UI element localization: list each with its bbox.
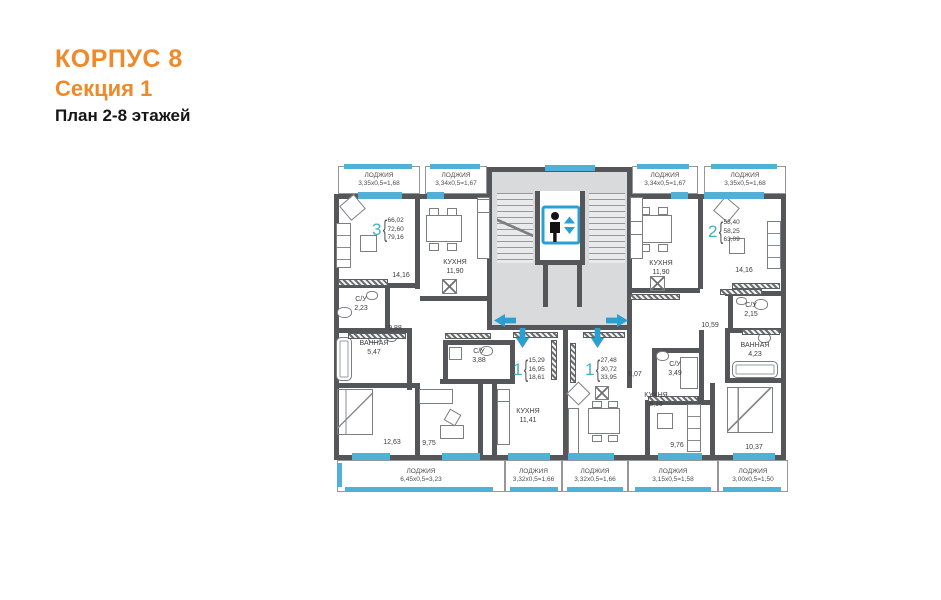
- loggia-top-1: ЛОДЖИЯ 3,35х0,5=1,68: [338, 166, 420, 194]
- window-strip: [345, 487, 493, 492]
- floor-plan: ЛОДЖИЯ 3,35х0,5=1,68 ЛОДЖИЯ 3,34х0,5=1,6…: [330, 163, 790, 495]
- window-strip: [637, 164, 689, 169]
- loggia-top-2: ЛОДЖИЯ 3,34х0,5=1,67: [425, 166, 487, 194]
- wall-segment: [443, 340, 448, 383]
- furniture: [767, 221, 781, 269]
- room-label-mid2-hall: 6,07: [622, 370, 648, 379]
- room-label-bedroom-1263: 12,63: [374, 438, 410, 447]
- loggia-top-4: ЛОДЖИЯ 3,35х0,5=1,68: [704, 166, 786, 194]
- room-label-left-living: 14,16: [384, 271, 418, 280]
- area-total: 15,29: [528, 357, 544, 365]
- entrance-arrow-down-1: [516, 328, 529, 348]
- room-area: 9,75: [412, 439, 446, 448]
- area-living: 30,72: [600, 366, 616, 374]
- room-label-mid-wc: С/У3,88: [462, 347, 496, 365]
- elevator-icon: [541, 205, 581, 245]
- title-block: КОРПУС 8 Секция 1 План 2-8 этажей: [55, 44, 190, 128]
- room-label-room-976: 9,76: [660, 441, 694, 450]
- entrance-arrow-down-2: [591, 328, 604, 348]
- wall-segment: [420, 296, 492, 301]
- window-strip: [352, 453, 390, 460]
- wall-segment: [580, 191, 585, 265]
- wall-segment: [577, 265, 582, 307]
- room-area: 12,63: [374, 438, 410, 447]
- window-strip: [658, 453, 702, 460]
- wall-segment: [407, 328, 412, 390]
- loggia-dims: 3,34х0,5=1,67: [435, 180, 476, 188]
- window-strip: [442, 453, 480, 460]
- furniture: [429, 208, 439, 216]
- furniture: [592, 401, 602, 408]
- furniture: [732, 361, 778, 378]
- area-full: 18,61: [528, 374, 544, 382]
- vent-hatch: [720, 289, 762, 295]
- room-area: 5,47: [350, 348, 398, 357]
- furniture: [426, 215, 462, 242]
- vent-hatch: [583, 332, 625, 338]
- furniture: [477, 199, 490, 213]
- loggia-dims: 3,35х0,5=1,68: [724, 180, 765, 188]
- room-area: 2,23: [346, 304, 376, 313]
- area-total: 66,02: [387, 217, 403, 225]
- room-name: КУХНЯ: [641, 259, 681, 268]
- window-strip: [635, 487, 711, 492]
- room-name: КУХНЯ: [634, 391, 678, 400]
- area-full: 79,16: [387, 234, 403, 242]
- room-label-mid-kitchen: КУХНЯ11,41: [508, 407, 548, 425]
- window-strip: [671, 192, 688, 199]
- wall-segment: [699, 330, 704, 400]
- furniture: [658, 244, 668, 252]
- apartment-1b-label: 1 { 27,48 30,72 33,95: [585, 356, 617, 384]
- window-strip: [545, 165, 595, 171]
- apartment-number: 3: [372, 220, 381, 240]
- area-total: 27,48: [600, 357, 616, 365]
- vent-hatch: [630, 294, 680, 300]
- area-total: 53,40: [723, 219, 739, 227]
- wall-segment: [543, 265, 548, 307]
- wall-segment: [728, 378, 781, 383]
- window-strip: [337, 463, 342, 487]
- room-area: 9,76: [660, 441, 694, 450]
- vent-hatch: [445, 333, 491, 339]
- room-area: 10,37: [736, 443, 772, 452]
- room-area: 4,23: [727, 350, 783, 359]
- room-label-left-hall: 9,88: [380, 324, 410, 333]
- furniture: [442, 279, 457, 294]
- window-strip: [711, 164, 777, 169]
- room-label-right-wc: С/У2,15: [729, 301, 773, 319]
- loggia-name: ЛОДЖИЯ: [731, 172, 760, 180]
- room-name: ВАННАЯ: [727, 341, 783, 350]
- room-area: 14,16: [726, 266, 762, 275]
- room-name: ВАННАЯ: [350, 339, 398, 348]
- area-living: 72,60: [387, 226, 403, 234]
- loggia-dims: 6,45х0,5=3,23: [400, 476, 441, 484]
- brace: {: [524, 356, 528, 384]
- room-area: 8,16: [634, 400, 678, 409]
- wall-segment: [710, 383, 715, 460]
- apartment-areas: 15,29 16,95 18,61: [528, 357, 544, 382]
- wall-segment: [535, 191, 540, 265]
- stairs-left-flight-line: [497, 193, 533, 263]
- window-strip: [733, 453, 775, 460]
- room-area: 11,90: [641, 268, 681, 277]
- area-full: 63,09: [723, 236, 739, 244]
- furniture: [568, 408, 579, 455]
- furniture: [595, 386, 609, 400]
- wall-segment: [478, 383, 483, 460]
- window-strip: [344, 164, 412, 169]
- loggia-dims: 3,15х0,5=1,58: [652, 476, 693, 484]
- loggia-top-3: ЛОДЖИЯ 3,34х0,5=1,67: [632, 166, 698, 194]
- room-label-left-kitchen: КУХНЯ11,90: [435, 258, 475, 276]
- brace: {: [596, 356, 600, 384]
- furniture: [449, 347, 462, 360]
- furniture: [440, 425, 464, 439]
- apartment-number: 1: [585, 360, 594, 380]
- vent-hatch: [551, 340, 557, 380]
- room-name: КУХНЯ: [508, 407, 548, 416]
- wall-segment: [334, 383, 418, 388]
- room-label-right-living: 14,16: [726, 266, 762, 275]
- area-living: 16,95: [528, 366, 544, 374]
- loggia-name: ЛОДЖИЯ: [739, 468, 768, 476]
- room-name: С/У: [729, 301, 773, 310]
- room-area: 6,07: [622, 370, 648, 379]
- window-strip: [508, 453, 550, 460]
- wall-segment: [440, 379, 515, 384]
- loggia-name: ЛОДЖИЯ: [442, 172, 471, 180]
- loggia-name: ЛОДЖИЯ: [407, 468, 436, 476]
- apartment-areas: 27,48 30,72 33,95: [600, 357, 616, 382]
- loggia-name: ЛОДЖИЯ: [659, 468, 688, 476]
- area-full: 33,95: [600, 374, 616, 382]
- furniture: [657, 413, 673, 429]
- wall-segment: [627, 330, 632, 388]
- room-name: С/У: [462, 347, 496, 356]
- floor-plan-page: КОРПУС 8 Секция 1 План 2-8 этажей ЛОДЖИЯ…: [0, 0, 941, 600]
- furniture: [336, 223, 351, 268]
- wall-segment: [698, 194, 703, 289]
- window-strip: [510, 487, 558, 492]
- furniture: [658, 207, 668, 215]
- loggia-name: ЛОДЖИЯ: [581, 468, 610, 476]
- vent-hatch: [742, 329, 780, 335]
- wall-segment: [781, 194, 786, 460]
- apartment-1a-label: 1 { 15,29 16,95 18,61: [513, 356, 545, 384]
- room-label-bedroom-975: 9,75: [412, 439, 446, 448]
- window-strip: [567, 487, 623, 492]
- room-label-right-wc2: С/У3,49: [654, 360, 696, 378]
- window-strip: [568, 453, 614, 460]
- furniture: [566, 381, 590, 405]
- window-strip: [427, 192, 444, 199]
- room-label-left-wc: С/У2,23: [346, 295, 376, 313]
- apartment-number: 1: [513, 360, 522, 380]
- furniture: [337, 389, 373, 435]
- area-living: 58,25: [723, 228, 739, 236]
- room-name: КУХНЯ: [435, 258, 475, 267]
- window-strip: [704, 192, 764, 199]
- furniture: [588, 408, 620, 434]
- window-strip: [358, 192, 402, 199]
- furniture: [429, 243, 439, 251]
- window-strip: [723, 487, 781, 492]
- room-name: С/У: [654, 360, 696, 369]
- section-title: Секция 1: [55, 75, 190, 104]
- room-area: 11,90: [435, 267, 475, 276]
- loggia-dims: 3,35х0,5=1,68: [358, 180, 399, 188]
- wall-segment: [443, 340, 513, 345]
- apartment-3-label: 3 { 66,02 72,60 79,16: [372, 216, 404, 244]
- furniture: [608, 435, 618, 442]
- room-area: 9,88: [380, 324, 410, 333]
- room-area: 11,41: [508, 416, 548, 425]
- room-label-right-bath: ВАННАЯ4,23: [727, 341, 783, 359]
- plan-subtitle: План 2-8 этажей: [55, 104, 190, 128]
- vent-hatch: [570, 343, 576, 383]
- furniture: [419, 389, 453, 404]
- furniture: [447, 208, 457, 216]
- loggia-dims: 3,34х0,5=1,67: [644, 180, 685, 188]
- room-label-mid2-kitchen: КУХНЯ8,16: [634, 391, 678, 409]
- furniture: [608, 401, 618, 408]
- furniture: [592, 435, 602, 442]
- loggia-dims: 3,00х0,5=1,50: [732, 476, 773, 484]
- loggia-name: ЛОДЖИЯ: [651, 172, 680, 180]
- room-label-right-hall: 10,59: [692, 321, 728, 330]
- loggia-name: ЛОДЖИЯ: [519, 468, 548, 476]
- furniture: [497, 389, 510, 402]
- furniture: [447, 243, 457, 251]
- room-area: 2,15: [729, 310, 773, 319]
- room-area: 3,88: [462, 356, 496, 365]
- room-label-bedroom-1037: 10,37: [736, 443, 772, 452]
- apartment-areas: 53,40 58,25 63,09: [723, 219, 739, 244]
- brace: {: [719, 218, 723, 246]
- room-name: С/У: [346, 295, 376, 304]
- vent-hatch: [338, 279, 388, 286]
- room-area: 10,59: [692, 321, 728, 330]
- room-area: 14,16: [384, 271, 418, 280]
- room-label-left-bath: ВАННАЯ5,47: [350, 339, 398, 357]
- loggia-dims: 3,32х0,5=1,66: [574, 476, 615, 484]
- loggia-name: ЛОДЖИЯ: [365, 172, 394, 180]
- room-area: 3,49: [654, 369, 696, 378]
- apartment-2-label: 2 { 53,40 58,25 63,09: [708, 218, 740, 246]
- apartment-areas: 66,02 72,60 79,16: [387, 217, 403, 242]
- furniture: [630, 221, 643, 235]
- room-label-right-kitchen: КУХНЯ11,90: [641, 259, 681, 277]
- building-title: КОРПУС 8: [55, 44, 190, 75]
- apartment-number: 2: [708, 222, 717, 242]
- window-strip: [430, 164, 480, 169]
- brace: {: [383, 216, 387, 244]
- stairs-right: [589, 193, 625, 263]
- loggia-dims: 3,32х0,5=1,66: [513, 476, 554, 484]
- furniture: [727, 387, 773, 433]
- furniture: [650, 276, 665, 291]
- furniture: [444, 409, 462, 427]
